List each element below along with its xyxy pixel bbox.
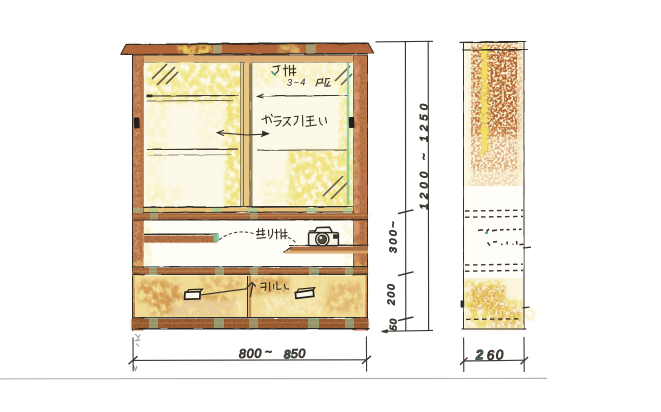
svg-text:2: 2 <box>474 347 484 362</box>
svg-text:800: 800 <box>239 346 263 361</box>
svg-text:1200 ~ 1250: 1200 ~ 1250 <box>419 100 431 210</box>
svg-text:50: 50 <box>291 346 306 361</box>
svg-text:~: ~ <box>265 347 272 359</box>
svg-text:300~: 300~ <box>388 219 400 253</box>
svg-text:50: 50 <box>389 318 400 331</box>
svg-text:60: 60 <box>486 347 505 363</box>
svg-text:3~4: 3~4 <box>287 77 307 89</box>
svg-text:200: 200 <box>387 282 398 306</box>
